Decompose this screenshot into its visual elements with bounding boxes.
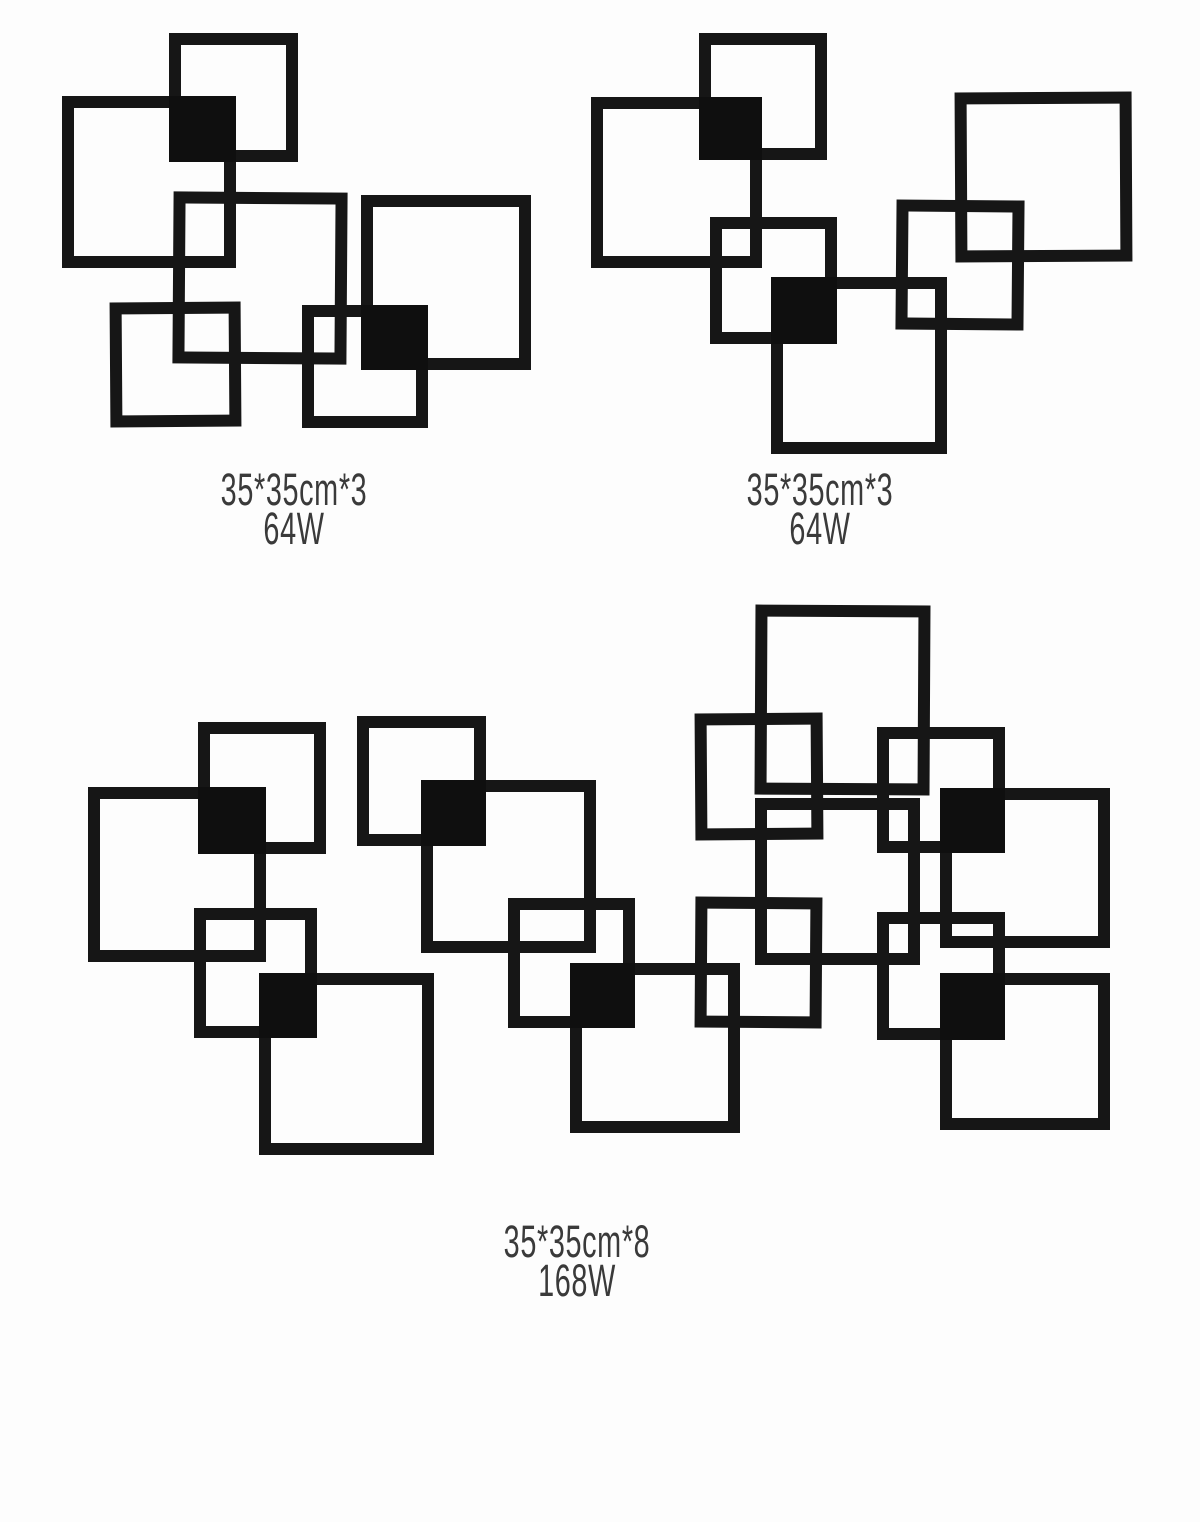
square-frame [695,897,823,1029]
wattage-text: 64W [747,509,894,548]
led-module-square [771,277,837,344]
lamp-spec-figure: 35*35cm*3 64W 35*35cm*3 64W 35*35cm*8 16… [0,0,1200,1522]
led-module-square [940,973,1005,1040]
size-wattage-label-bottom: 35*35cm*8 168W [462,1222,691,1300]
led-module-square [259,973,317,1038]
led-module-square [940,788,1005,853]
size-wattage-label-left: 35*35cm*3 64W [179,470,408,548]
wattage-text: 168W [504,1261,651,1300]
led-module-square [198,787,266,854]
led-module-square [699,97,762,160]
square-frame [110,302,242,428]
led-module-square [421,780,486,846]
square-frame [955,92,1133,263]
led-module-square [570,963,635,1028]
led-module-square [361,305,428,370]
size-wattage-label-right: 35*35cm*3 64W [705,470,934,548]
wattage-text: 64W [221,509,368,548]
led-module-square [169,96,236,162]
